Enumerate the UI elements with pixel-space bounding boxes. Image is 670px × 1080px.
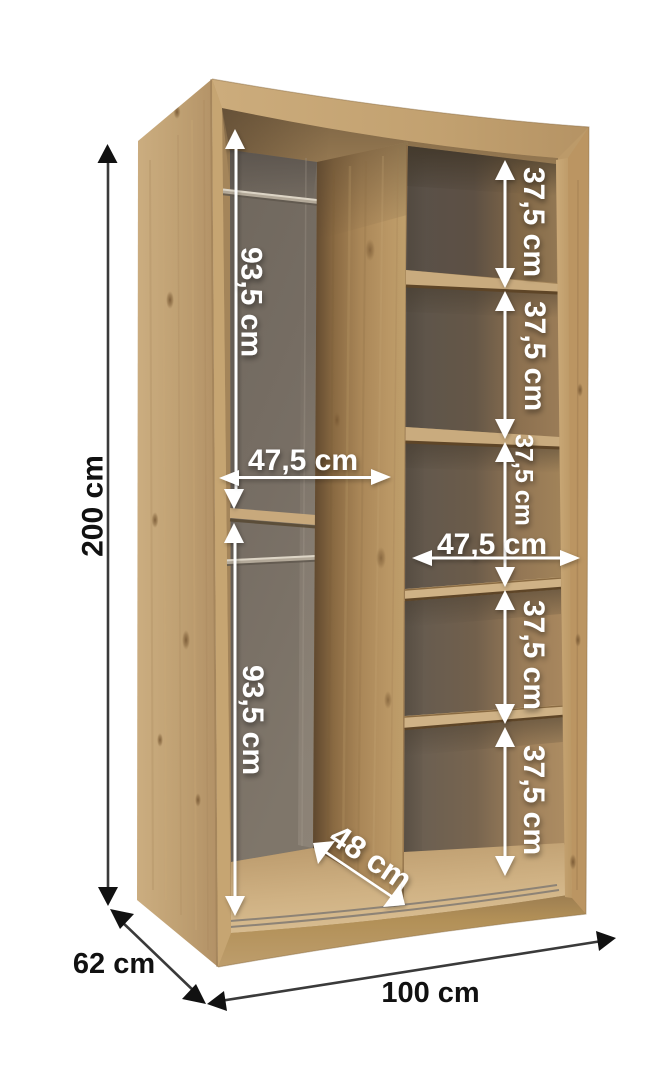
svg-text:93,5 cm: 93,5 cm [235, 247, 268, 357]
svg-text:37,5 cm: 37,5 cm [517, 600, 550, 710]
svg-text:37,5 cm: 37,5 cm [517, 167, 550, 277]
svg-text:37,5 cm: 37,5 cm [517, 745, 550, 855]
svg-text:37,5 cm: 37,5 cm [518, 301, 551, 411]
svg-text:93,5 cm: 93,5 cm [236, 665, 269, 775]
svg-text:62 cm: 62 cm [73, 948, 155, 980]
svg-text:200 cm: 200 cm [77, 455, 110, 557]
svg-text:47,5 cm: 47,5 cm [437, 528, 547, 561]
svg-text:47,5 cm: 47,5 cm [248, 444, 358, 477]
svg-text:37,5 cm: 37,5 cm [510, 434, 538, 526]
svg-text:100 cm: 100 cm [381, 977, 479, 1009]
